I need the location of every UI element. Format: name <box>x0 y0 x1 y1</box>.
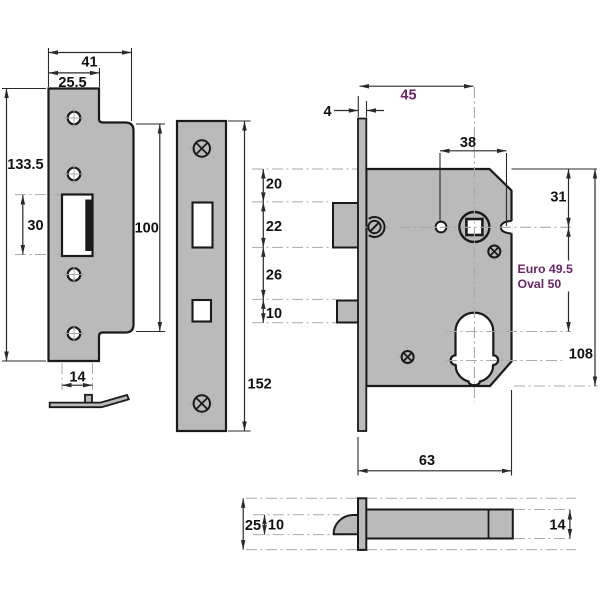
svg-text:133.5: 133.5 <box>7 157 43 173</box>
svg-text:100: 100 <box>135 221 159 237</box>
svg-text:31: 31 <box>550 190 566 206</box>
svg-text:25: 25 <box>245 518 261 534</box>
svg-text:10: 10 <box>266 306 282 322</box>
svg-text:Euro 49.5: Euro 49.5 <box>518 262 574 276</box>
svg-text:25.5: 25.5 <box>58 75 86 91</box>
svg-text:152: 152 <box>248 377 272 393</box>
svg-text:Oval 50: Oval 50 <box>518 277 562 291</box>
svg-text:108: 108 <box>569 347 593 363</box>
svg-text:45: 45 <box>400 87 416 103</box>
svg-text:14: 14 <box>549 518 565 534</box>
svg-text:38: 38 <box>460 135 476 151</box>
svg-text:63: 63 <box>419 453 435 469</box>
svg-text:30: 30 <box>27 218 43 234</box>
svg-text:10: 10 <box>268 518 284 534</box>
svg-text:26: 26 <box>266 268 282 284</box>
svg-text:4: 4 <box>324 104 332 120</box>
svg-text:20: 20 <box>266 177 282 193</box>
svg-text:41: 41 <box>81 55 97 71</box>
svg-text:14: 14 <box>69 370 85 386</box>
svg-text:22: 22 <box>266 219 282 235</box>
